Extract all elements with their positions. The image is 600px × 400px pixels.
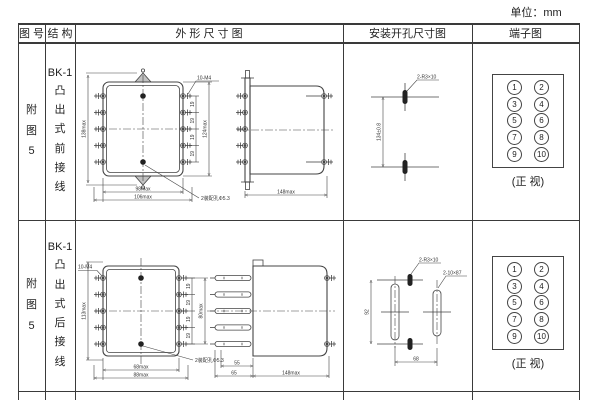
terminal-1: 1	[507, 80, 522, 95]
dim-124max: 124max	[203, 120, 209, 138]
label-slots-rear: 2-R3×10	[419, 258, 439, 264]
terminal-3: 3	[507, 97, 522, 112]
unit-label: 单位：mm	[492, 4, 580, 20]
row2-model: BK-1	[48, 239, 72, 256]
row2-terminal-caption: (正 视)	[484, 355, 572, 371]
terminal-2: 2	[534, 262, 549, 277]
header-outline: 外 形 尺 寸 图	[75, 23, 343, 42]
row1-wiring: 凸出式前接线	[54, 82, 67, 198]
terminal-2: 2	[534, 80, 549, 95]
terminal-5: 5	[507, 295, 522, 310]
row1-outline-drawing: 138max 19 19 19 19 124max 10-M4 98max 10	[75, 42, 343, 220]
dim-88max: 88max	[133, 373, 149, 379]
terminal-6: 6	[534, 113, 549, 128]
svg-text:19: 19	[190, 118, 196, 124]
row1-fig-no: 附图5	[18, 42, 45, 220]
dim-pitch-19: 19	[190, 101, 196, 107]
terminal-8: 8	[534, 130, 549, 145]
header-fig-no: 图 号	[18, 23, 45, 42]
terminal-5: 5	[507, 113, 522, 128]
row2-side-view: 55 65 148max	[207, 260, 336, 378]
row1-terminal-caption: (正 视)	[484, 173, 572, 189]
dim-106max: 106max	[134, 195, 152, 201]
svg-text:19: 19	[186, 333, 192, 339]
terminal-3: 3	[507, 279, 522, 294]
svg-text:19: 19	[190, 134, 196, 140]
label-mount-holes: 2装配孔Φ5.3	[201, 195, 230, 202]
row1-structure: BK-1 凸出式前接线	[45, 42, 75, 220]
table-vline-4	[472, 23, 473, 400]
row2-mounting-drawing: 2-R3×10 2-10×87 92 68	[343, 220, 472, 391]
label-10-M4: 10-M4	[197, 76, 211, 82]
terminal-4: 4	[534, 279, 549, 294]
row2-fig-no: 附图5	[18, 220, 45, 391]
terminal-10: 10	[534, 329, 549, 344]
row1-side-view: 148max	[236, 71, 333, 199]
dim-148max-rear: 148max	[282, 371, 300, 377]
label-10-M4-rear: 10-M4	[78, 265, 92, 271]
dim-134: 134±0.8	[377, 123, 383, 141]
terminal-8: 8	[534, 312, 549, 327]
svg-text:19: 19	[186, 300, 192, 306]
row1-front-view: 138max 19 19 19 19 124max 10-M4 98max 10	[82, 69, 230, 202]
label-mount-holes-rear: 2装配孔Φ5.3	[195, 357, 224, 364]
terminal-7: 7	[507, 130, 522, 145]
row2-terminal-box: 1 2 3 4 5 6 7 8 9 10	[492, 256, 564, 350]
dim-68max: 68max	[133, 365, 149, 371]
row1-terminal-box: 1 2 3 4 5 6 7 8 9 10	[492, 74, 564, 168]
terminal-9: 9	[507, 329, 522, 344]
dim-98max: 98max	[135, 187, 151, 193]
table-vline-right	[579, 23, 580, 400]
dim-138max: 138max	[82, 120, 88, 138]
row1-model: BK-1	[48, 65, 72, 82]
terminal-9: 9	[507, 147, 522, 162]
row2-outline-drawing: 10-M4 113max 19 19 19 19 80max 6	[75, 220, 343, 391]
dim-65: 65	[231, 371, 237, 377]
terminal-7: 7	[507, 312, 522, 327]
svg-text:19: 19	[190, 151, 196, 157]
dim-148max: 148max	[277, 190, 295, 196]
label-slots2-rear: 2-10×87	[443, 271, 462, 277]
row1-mounting-drawing: 134±0.8 2-R3×10	[343, 42, 472, 220]
label-slots: 2-R3×10	[417, 75, 437, 81]
header-mounting: 安装开孔尺寸图	[343, 23, 472, 42]
dim-92: 92	[365, 309, 371, 315]
dim-68: 68	[413, 357, 419, 363]
dim-55: 55	[234, 361, 240, 367]
table-bottom-divider	[18, 391, 579, 392]
terminal-1: 1	[507, 262, 522, 277]
terminal-10: 10	[534, 147, 549, 162]
datasheet-page: 单位：mm 图 号 结 构 外 形 尺 寸 图 安装开孔尺寸图 端子图 附图5 …	[0, 0, 600, 400]
dim-80max: 80max	[199, 303, 205, 319]
header-terminal: 端子图	[472, 23, 579, 42]
dim-113max: 113max	[82, 302, 88, 320]
row2-wiring: 凸出式后接线	[54, 256, 67, 372]
svg-text:19: 19	[186, 283, 192, 289]
terminal-4: 4	[534, 97, 549, 112]
row2-structure: BK-1 凸出式后接线	[45, 220, 75, 391]
row2-front-view: 10-M4 113max 19 19 19 19 80max 6	[78, 258, 224, 380]
svg-text:19: 19	[186, 316, 192, 322]
terminal-6: 6	[534, 295, 549, 310]
header-structure: 结 构	[45, 23, 75, 42]
